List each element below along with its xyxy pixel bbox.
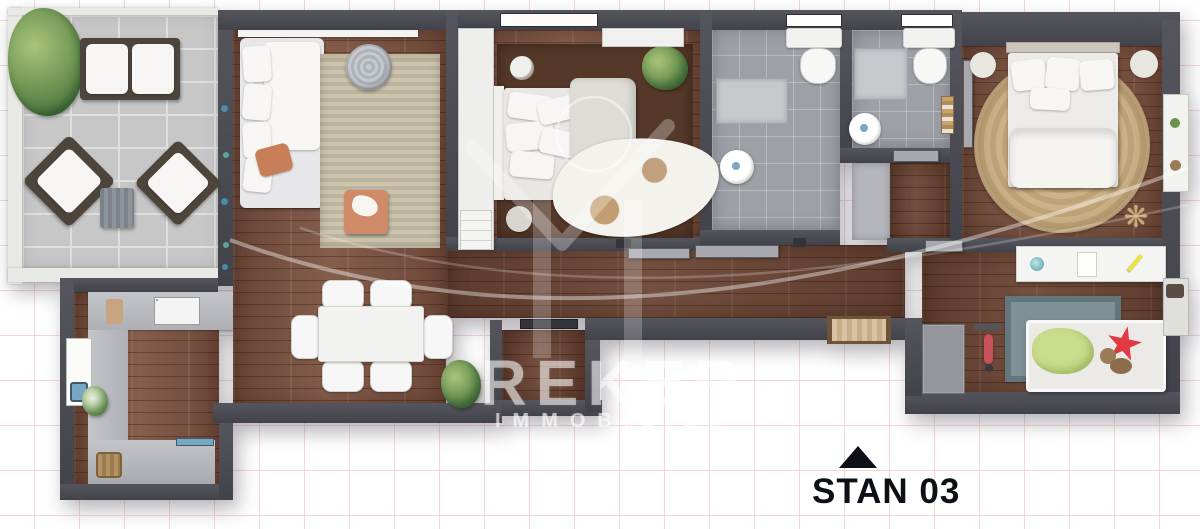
bed-pillow [1029,87,1070,111]
bathroom-1-south-wall [700,230,840,245]
vanity-sink [786,28,842,48]
window-bedroom-middle [500,13,598,27]
shower-tray [854,48,908,100]
scooter-handlebar [974,324,1002,330]
bedroom-top-closet [602,28,684,47]
wall-shelf-niche [1163,94,1189,192]
wicker-basket [96,452,122,478]
vanity-sink [903,28,955,48]
kitchen-sink-2 [176,438,214,446]
kids-bottom-wall [905,392,1180,414]
shelf-plant-icon [1170,118,1180,128]
living-console [238,30,418,37]
entry-door [520,319,578,329]
bathroom-1-door [695,245,779,258]
bedside-mat [1130,50,1158,78]
cutting-board [106,299,123,324]
bedside-mat [970,52,996,78]
kids-blanket [1032,328,1094,374]
teddy-bear-icon [1110,358,1132,374]
shower-tray [716,78,788,124]
master-nook-floor [887,163,950,240]
bed-pillow [1044,56,1081,91]
window-sill-flower [223,242,229,248]
bed-headboard [494,86,504,200]
dining-chair [370,360,412,392]
door-handle-icon [793,238,806,247]
stove [154,297,200,325]
door-handle-icon [616,239,631,248]
bathroom-2-door [893,150,939,162]
dining-table [318,306,424,362]
kids-room-door [925,240,963,252]
watermark-brand: REKER [450,346,780,420]
outdoor-sofa-cushion [132,44,174,94]
towel-rack [941,96,954,134]
master-duvet [1010,128,1116,188]
round-pouf [346,44,392,90]
triangle-up-icon [839,446,877,468]
window-bathroom-2 [901,14,953,27]
utility-closet [852,163,890,240]
dining-chair [423,315,453,359]
window-sill-flower [223,152,229,158]
bedroom-west-wall [446,10,458,250]
bathroom-divider-wall [840,30,852,160]
scooter-deck [984,334,993,364]
basin-faucet-icon [860,124,868,132]
stove-burner-icon [156,299,158,301]
kitchen-flowers-icon [82,386,108,416]
toilet [800,48,836,84]
bed-pillow [1079,59,1115,92]
toilet [913,48,947,84]
window-sill-flower [222,264,228,270]
outdoor-side-table [100,188,134,228]
master-headboard [1006,42,1120,53]
window-sill-flower [221,105,228,112]
dried-plant-icon: ❋ [1118,200,1154,236]
kids-left-wall [905,318,922,396]
kitchen-bottom-wall [60,484,233,500]
bedroom-plant-icon [642,46,688,90]
window-sill-flower [221,198,228,205]
apartment-floor-plan: ❋ [0,0,1200,529]
outdoor-sofa-cushion [86,44,128,94]
sofa-chaise-cushion [264,42,320,150]
kitchen-right-wall-lower [219,423,233,500]
shelf-item [1170,160,1181,171]
bed-pillow [509,150,555,180]
sofa-back-cushion [242,45,272,83]
kitchen-top-wall [60,278,218,292]
wardrobe-drawers [460,210,492,250]
entrance-mat [827,316,891,344]
top-wall-right [950,12,1180,46]
scooter-wheel-icon [985,364,993,372]
window-bathroom-1 [786,14,842,27]
breakfast-tray [510,56,534,80]
kitchen-counter-left [88,330,128,440]
desk-cup [1030,257,1044,271]
sofa-back-cushion [241,83,272,121]
niche-appliance [1166,284,1184,298]
kids-wardrobe [922,324,965,394]
floor-plan-canvas: ❋ REKER IMMOBILIEN STAN 03 [0,0,1200,529]
basin-faucet-icon [732,162,740,170]
desk-paper [1077,252,1097,277]
master-bedroom-door [963,60,973,148]
bedroom-stool [506,206,532,232]
unit-label: STAN 03 [812,472,960,512]
watermark-subtitle: IMMOBILIEN [455,410,775,433]
bedroom-middle-door [628,248,690,259]
dining-chair [291,315,321,359]
bathroom-west-wall [700,10,712,245]
dining-chair [322,360,364,392]
